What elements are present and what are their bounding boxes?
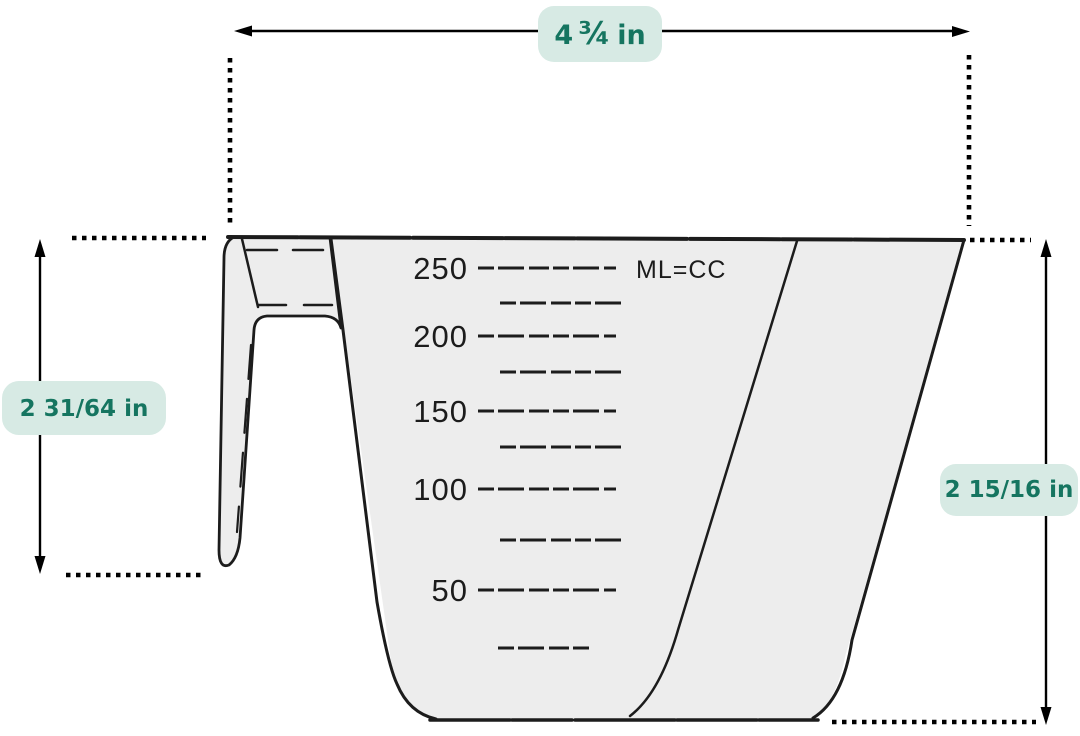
- width-fraction: ¾: [578, 16, 610, 52]
- top-width-dimension: 4¾in: [230, 6, 970, 228]
- diagram-svg: 250 200 150 100 50 ML=CC 4¾in 2 31/64 in…: [0, 0, 1080, 736]
- handle-height-arrowhead-down-icon: [35, 556, 46, 574]
- width-whole-number: 4: [554, 20, 573, 51]
- cup-drawing: [219, 237, 966, 720]
- ml-cc-unit-label: ML=CC: [636, 256, 726, 284]
- cup-height-label: 2 15/16 in: [945, 477, 1074, 503]
- scale-label-200: 200: [413, 319, 468, 354]
- handle-height-dimension: 2 31/64 in: [2, 238, 206, 575]
- width-unit: in: [617, 20, 645, 51]
- handle-height-label: 2 31/64 in: [20, 396, 149, 422]
- width-dimension-label: 4¾in: [554, 16, 645, 52]
- scale-label-250: 250: [413, 251, 468, 286]
- width-arrowhead-right-icon: [952, 26, 970, 37]
- scale-label-100: 100: [413, 472, 468, 507]
- measuring-cup-dimension-diagram: 250 200 150 100 50 ML=CC 4¾in 2 31/64 in…: [0, 0, 1080, 736]
- width-arrowhead-left-icon: [234, 26, 252, 37]
- scale-label-50: 50: [432, 573, 468, 608]
- handle-height-arrowhead-up-icon: [35, 239, 46, 257]
- cup-height-arrowhead-down-icon: [1041, 707, 1052, 725]
- scale-label-150: 150: [413, 394, 468, 429]
- cup-height-arrowhead-up-icon: [1041, 239, 1052, 257]
